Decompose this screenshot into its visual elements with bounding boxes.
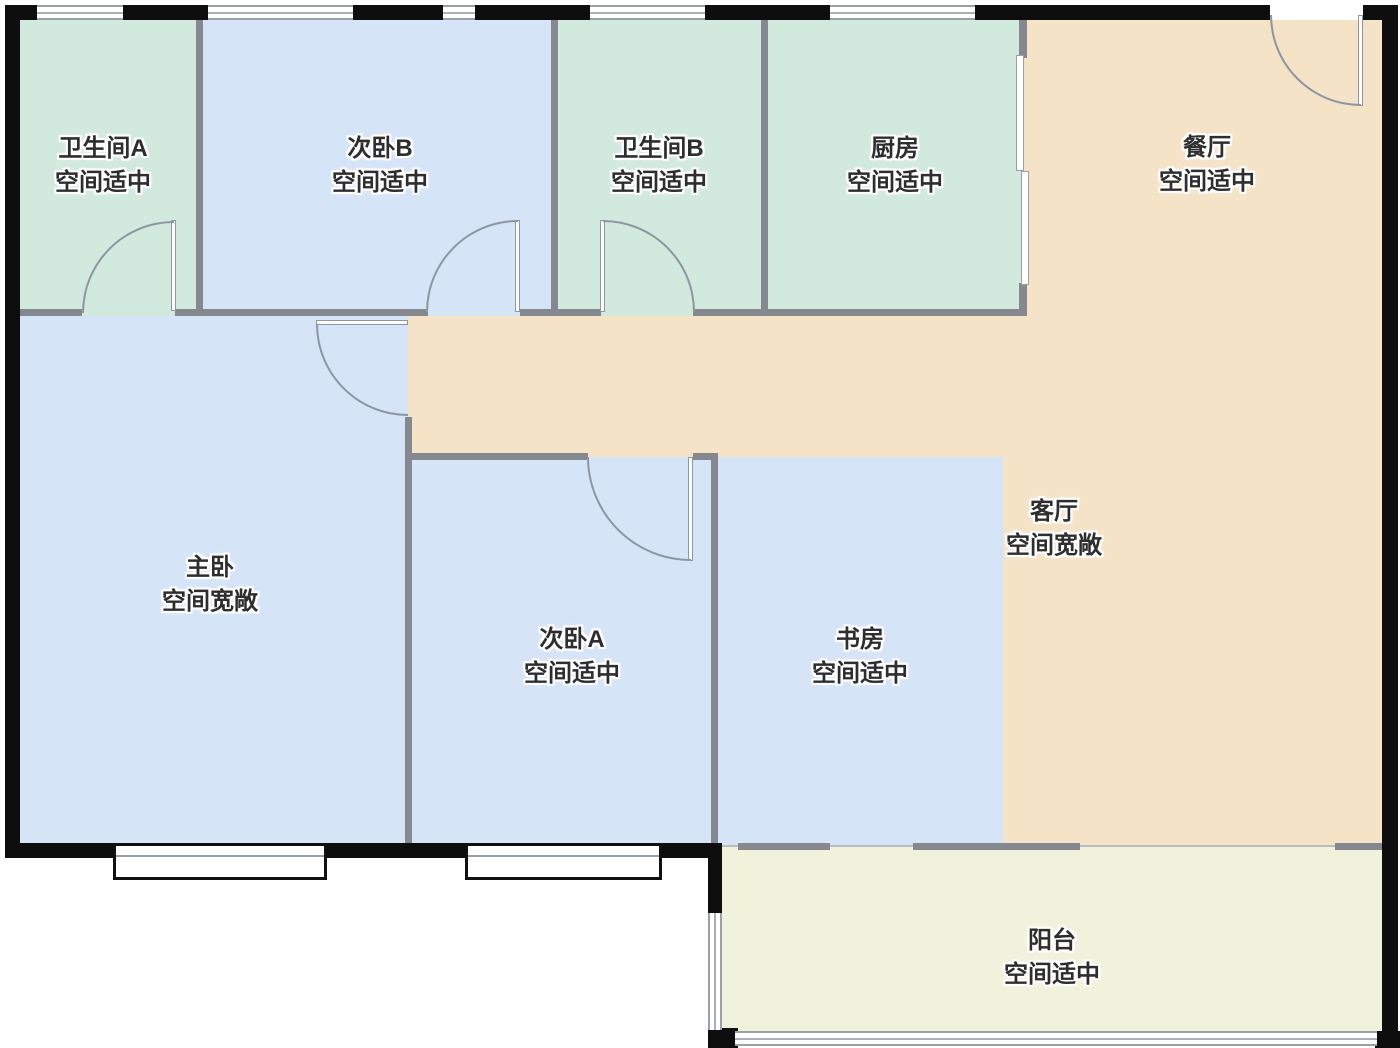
room-label-study: 书房 空间适中 xyxy=(812,623,908,691)
window xyxy=(208,5,353,20)
interior-wall xyxy=(405,453,588,460)
interior-wall xyxy=(520,309,601,316)
room-area-hallway xyxy=(408,316,1385,457)
room-label-dining: 餐厅 空间适中 xyxy=(1159,131,1255,199)
room-name: 卫生间B xyxy=(611,132,707,166)
interior-wall xyxy=(761,20,768,316)
room-name: 餐厅 xyxy=(1159,131,1255,165)
balcony-partition-wall xyxy=(913,843,1080,850)
exterior-wall xyxy=(708,1028,738,1048)
interior-wall xyxy=(1019,20,1027,58)
bay-window xyxy=(113,843,327,880)
kitchen-sliding-door xyxy=(1016,55,1024,171)
room-status: 空间适中 xyxy=(812,657,908,691)
exterior-wall xyxy=(705,5,830,20)
room-label-bathroom-b: 卫生间B 空间适中 xyxy=(611,132,707,200)
room-name: 客厅 xyxy=(1006,495,1102,529)
interior-wall xyxy=(405,417,412,847)
interior-wall xyxy=(196,20,203,316)
exterior-wall xyxy=(123,5,208,20)
interior-wall xyxy=(711,457,718,847)
room-status: 空间适中 xyxy=(1004,958,1100,992)
room-name: 卫生间A xyxy=(55,132,151,166)
room-name: 次卧B xyxy=(332,132,428,166)
room-label-master-bedroom: 主卧 空间宽敞 xyxy=(162,551,258,619)
interior-wall xyxy=(551,20,558,316)
exterior-wall xyxy=(5,5,20,858)
exterior-wall xyxy=(708,843,722,915)
balcony-partition-wall xyxy=(738,843,830,850)
exterior-wall xyxy=(5,843,115,858)
bay-window xyxy=(465,843,662,880)
room-name: 次卧A xyxy=(524,623,620,657)
balcony-partition-wall xyxy=(1335,843,1387,850)
window xyxy=(735,1031,1377,1046)
room-status: 空间适中 xyxy=(332,166,428,200)
exterior-wall xyxy=(975,5,1270,20)
room-label-kitchen: 厨房 空间适中 xyxy=(847,132,943,200)
window xyxy=(590,5,705,20)
room-status: 空间适中 xyxy=(55,166,151,200)
window xyxy=(443,5,475,20)
room-label-living: 客厅 空间宽敞 xyxy=(1006,495,1102,563)
room-status: 空间适中 xyxy=(524,657,620,691)
room-label-bathroom-a: 卫生间A 空间适中 xyxy=(55,132,151,200)
room-name: 主卧 xyxy=(162,551,258,585)
kitchen-sliding-door xyxy=(1021,171,1029,285)
window xyxy=(830,5,975,20)
interior-wall xyxy=(18,309,82,316)
room-label-balcony: 阳台 空间适中 xyxy=(1004,924,1100,992)
room-status: 空间适中 xyxy=(611,166,707,200)
room-name: 书房 xyxy=(812,623,908,657)
exterior-wall xyxy=(475,5,590,20)
room-label-bedroom-b: 次卧B 空间适中 xyxy=(332,132,428,200)
room-status: 空间适中 xyxy=(1159,165,1255,199)
room-name: 阳台 xyxy=(1004,924,1100,958)
interior-wall xyxy=(1019,283,1027,316)
room-status: 空间适中 xyxy=(847,166,943,200)
room-label-bedroom-a: 次卧A 空间适中 xyxy=(524,623,620,691)
interior-wall xyxy=(693,309,1026,316)
exterior-wall xyxy=(1382,5,1398,1048)
window xyxy=(37,5,123,20)
interior-wall xyxy=(175,309,428,316)
room-status: 空间宽敞 xyxy=(162,585,258,619)
room-status: 空间宽敞 xyxy=(1006,529,1102,563)
window xyxy=(708,913,722,1030)
floor-plan: 卫生间A 空间适中 次卧B 空间适中 卫生间B 空间适中 厨房 空间适中 餐厅 … xyxy=(0,0,1400,1048)
exterior-wall xyxy=(353,5,443,20)
room-name: 厨房 xyxy=(847,132,943,166)
exterior-wall xyxy=(325,843,467,858)
